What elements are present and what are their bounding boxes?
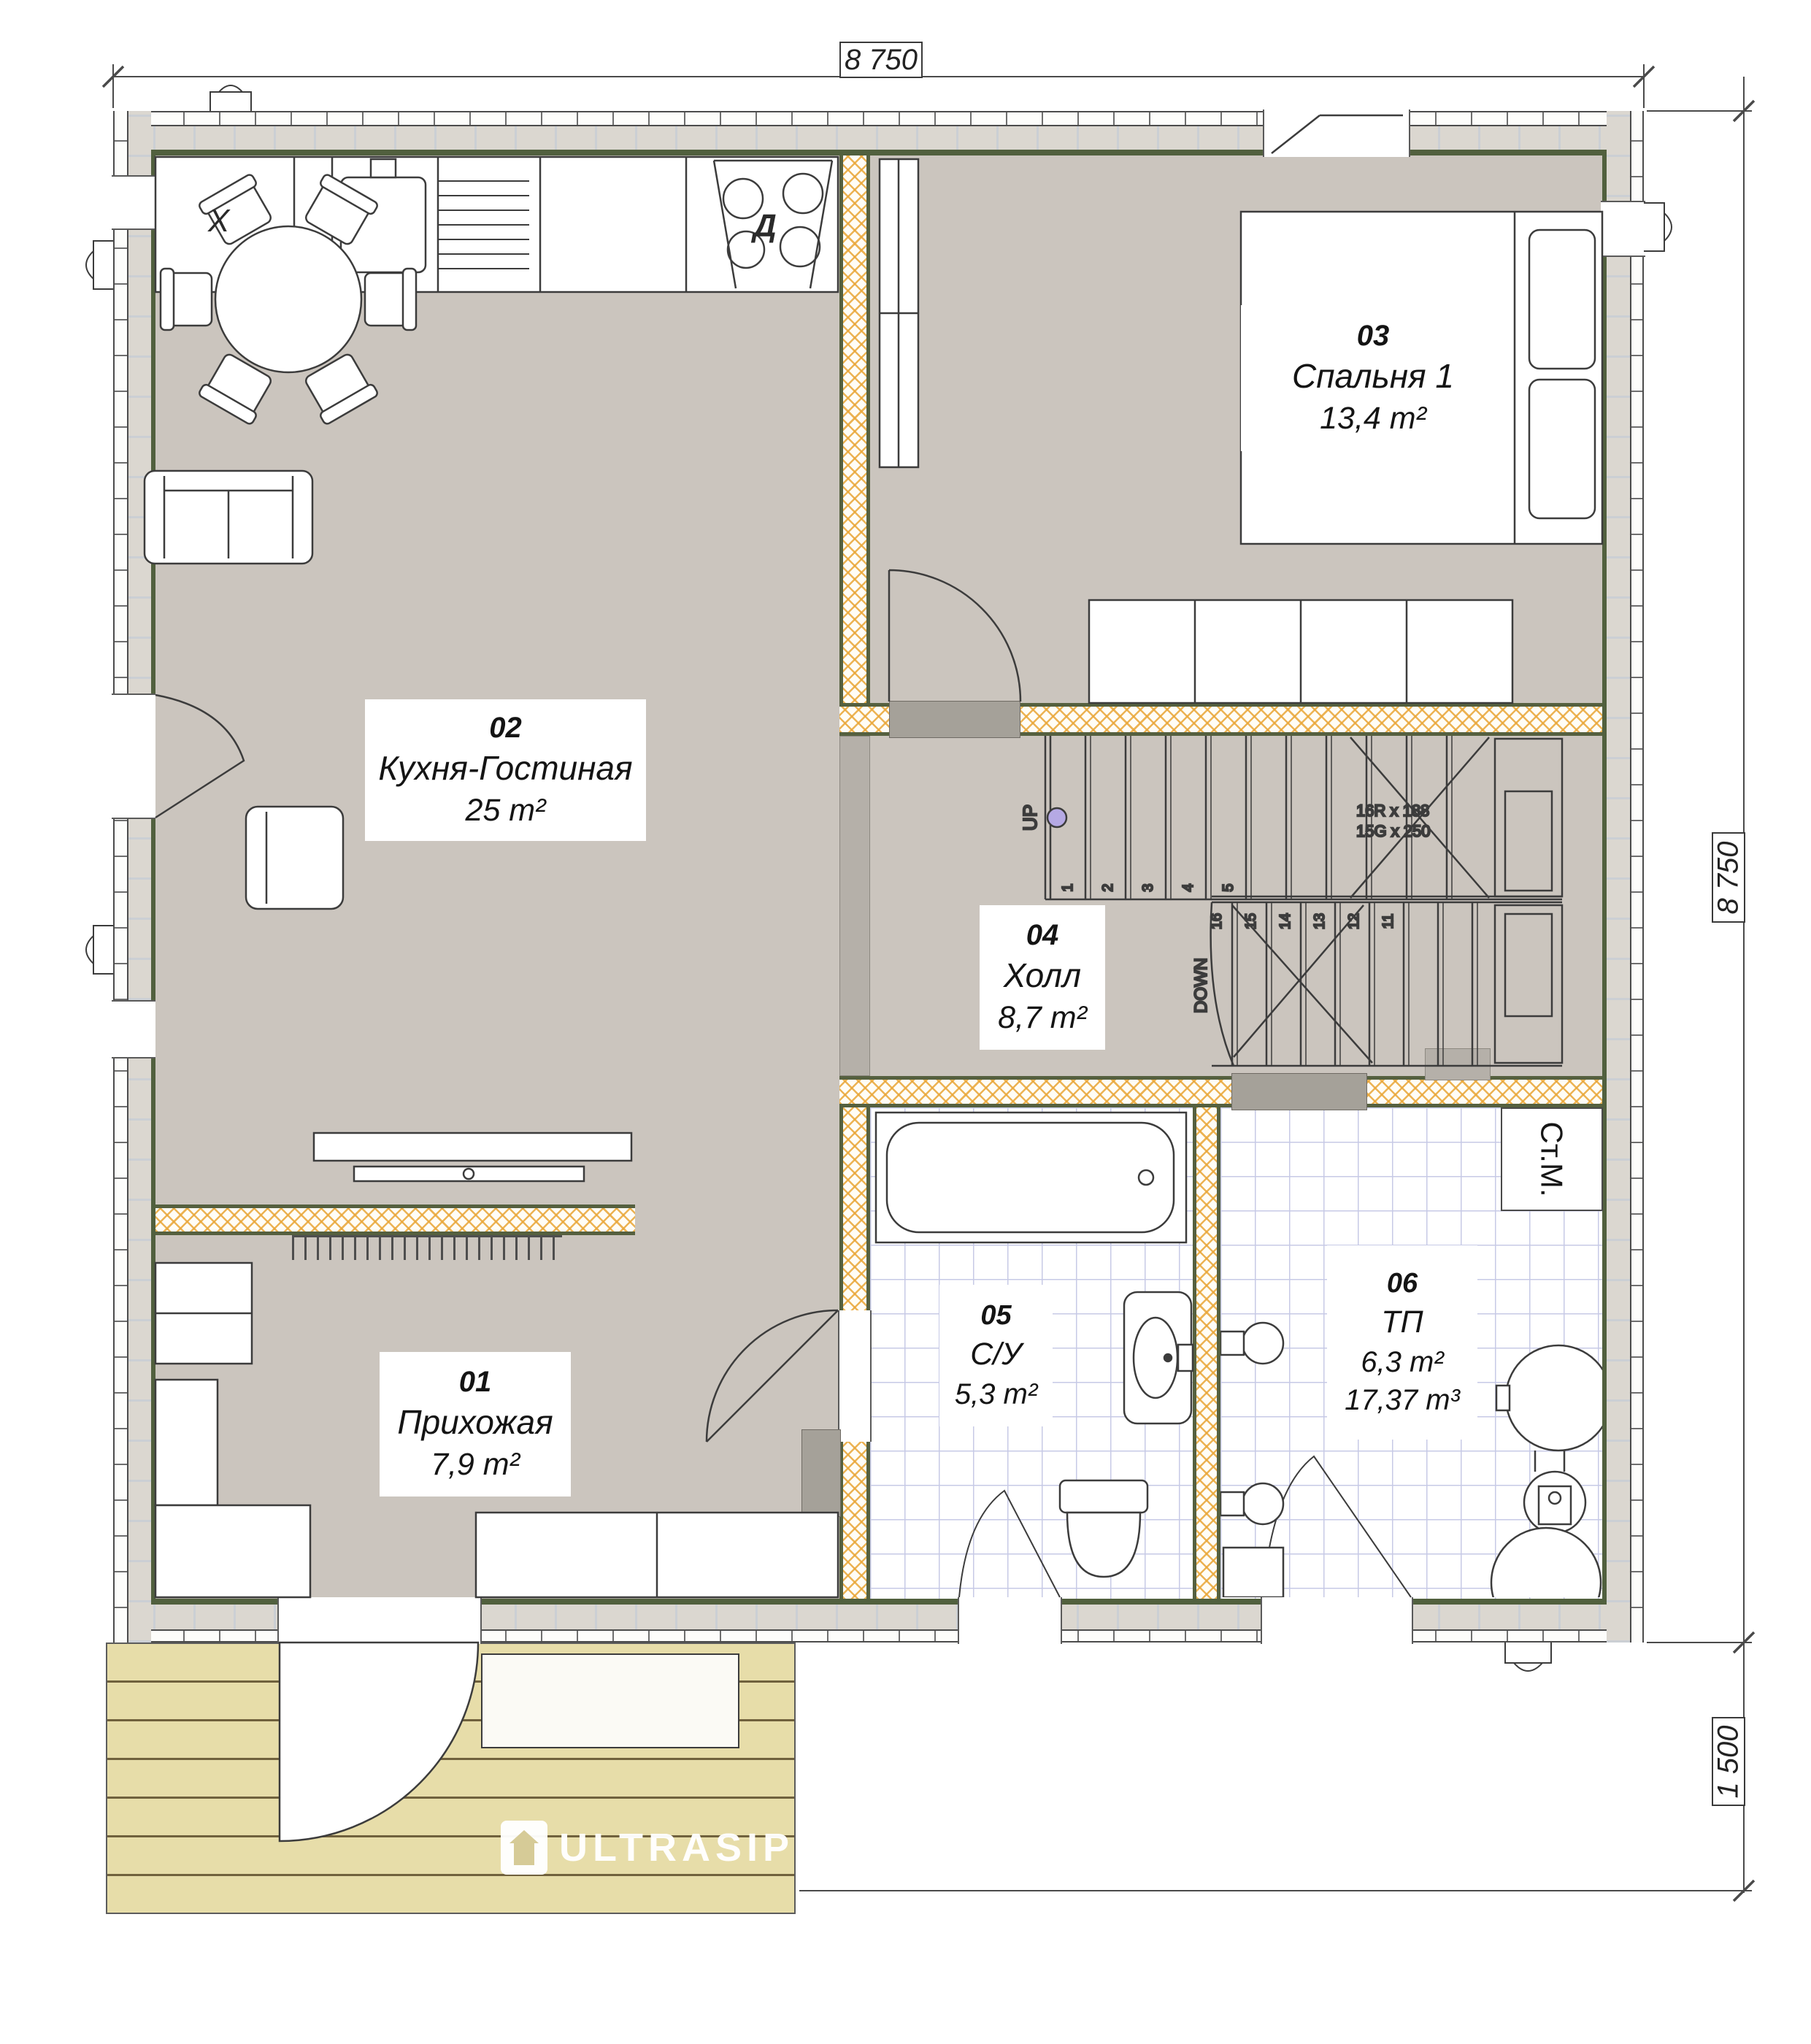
room-number: 03 — [1357, 317, 1390, 355]
room-name: С/У — [970, 1334, 1021, 1375]
room-name: Холл — [1004, 954, 1081, 998]
stairs-up-label: UP — [1019, 804, 1041, 831]
bathroom-door-swing — [707, 1310, 838, 1442]
tv-console — [314, 1133, 631, 1181]
bathroom-window-tilt — [959, 1491, 1060, 1597]
room-number: 01 — [459, 1363, 492, 1401]
logo-text: ULTRASIP — [559, 1825, 794, 1870]
plan-linework: UP DOWN 16R x 188 15G x 250 1 2 3 4 5 16… — [0, 0, 1811, 2044]
svg-text:11: 11 — [1380, 914, 1396, 929]
room-area: 7,9 m² — [431, 1445, 520, 1486]
svg-text:2: 2 — [1100, 883, 1116, 891]
svg-text:12: 12 — [1346, 913, 1362, 929]
bathtub — [876, 1113, 1186, 1242]
logo-house-icon — [501, 1821, 547, 1875]
room-area: 5,3 m² — [955, 1375, 1037, 1413]
room-number: 04 — [1026, 916, 1059, 954]
room-volume: 17,37 m³ — [1345, 1381, 1460, 1419]
floor-plan-canvas: UP DOWN 16R x 188 15G x 250 1 2 3 4 5 16… — [0, 0, 1811, 2044]
dim-top: 8 750 — [839, 42, 923, 78]
room-label-kitchen-living: 02 Кухня-Гостиная 25 m² — [365, 699, 646, 841]
room-area: 6,3 m² — [1361, 1343, 1443, 1381]
dim-right-lower: 1 500 — [1712, 1717, 1745, 1806]
stairs-going-note: 15G x 250 — [1356, 822, 1431, 840]
room-number: 06 — [1387, 1266, 1418, 1302]
room-name: Прихожая — [397, 1401, 553, 1445]
brand-logo: ULTRASIP — [501, 1821, 794, 1875]
room-name: Кухня-Гостиная — [378, 747, 632, 791]
bedroom-window-sash — [1272, 115, 1403, 153]
stairs-down-label: DOWN — [1191, 958, 1211, 1013]
stair-tread-numbers-up: 1 2 3 4 5 — [1060, 883, 1237, 891]
boiler-window-tilt — [1263, 1456, 1411, 1597]
room-area: 25 m² — [466, 791, 546, 831]
dim-right-upper: 8 750 — [1712, 832, 1745, 923]
door-mat — [482, 1654, 739, 1748]
toilet — [1060, 1480, 1147, 1577]
stairs-riser-note: 16R x 188 — [1356, 802, 1429, 820]
svg-text:4: 4 — [1180, 883, 1196, 891]
room-label-bathroom: 05 С/У 5,3 m² — [939, 1285, 1053, 1426]
room-name: ТП — [1381, 1302, 1423, 1343]
room-label-boiler: 06 ТП 6,3 m² 17,37 m³ — [1327, 1245, 1477, 1440]
armchair — [246, 807, 343, 909]
washing-machine: Ст.М. — [1501, 1107, 1603, 1211]
svg-text:5: 5 — [1220, 883, 1237, 891]
entry-door-swing — [280, 1642, 478, 1841]
svg-text:15: 15 — [1243, 913, 1259, 929]
washbasin — [1124, 1292, 1193, 1423]
svg-text:16: 16 — [1209, 913, 1225, 929]
room-name: Спальня 1 — [1292, 355, 1454, 399]
dim-right-upper-value: 8 750 — [1712, 841, 1745, 914]
room-area: 8,7 m² — [998, 998, 1087, 1039]
svg-text:13: 13 — [1312, 913, 1328, 929]
svg-text:3: 3 — [1140, 883, 1156, 891]
room-label-entry: 01 Прихожая 7,9 m² — [380, 1352, 571, 1496]
bedroom-cabinet — [880, 159, 918, 467]
stove-label: Д — [753, 208, 777, 245]
room-number: 05 — [980, 1298, 1011, 1334]
room-number: 02 — [489, 709, 522, 747]
svg-text:14: 14 — [1277, 913, 1293, 929]
balcony-door-swing — [155, 695, 244, 818]
washing-machine-label: Ст.М. — [1534, 1121, 1569, 1196]
fridge-label: X — [208, 203, 229, 239]
dresser — [1089, 600, 1512, 703]
room-label-bedroom: 03 Спальня 1 13,4 m² — [1241, 305, 1505, 451]
room-area: 13,4 m² — [1320, 399, 1426, 439]
dim-right-lower-value: 1 500 — [1712, 1725, 1745, 1798]
bedroom-door-swing — [889, 570, 1020, 702]
room-label-hall: 04 Холл 8,7 m² — [980, 905, 1105, 1050]
dim-top-value: 8 750 — [845, 44, 918, 77]
svg-text:1: 1 — [1060, 883, 1076, 891]
sofa — [145, 471, 312, 564]
